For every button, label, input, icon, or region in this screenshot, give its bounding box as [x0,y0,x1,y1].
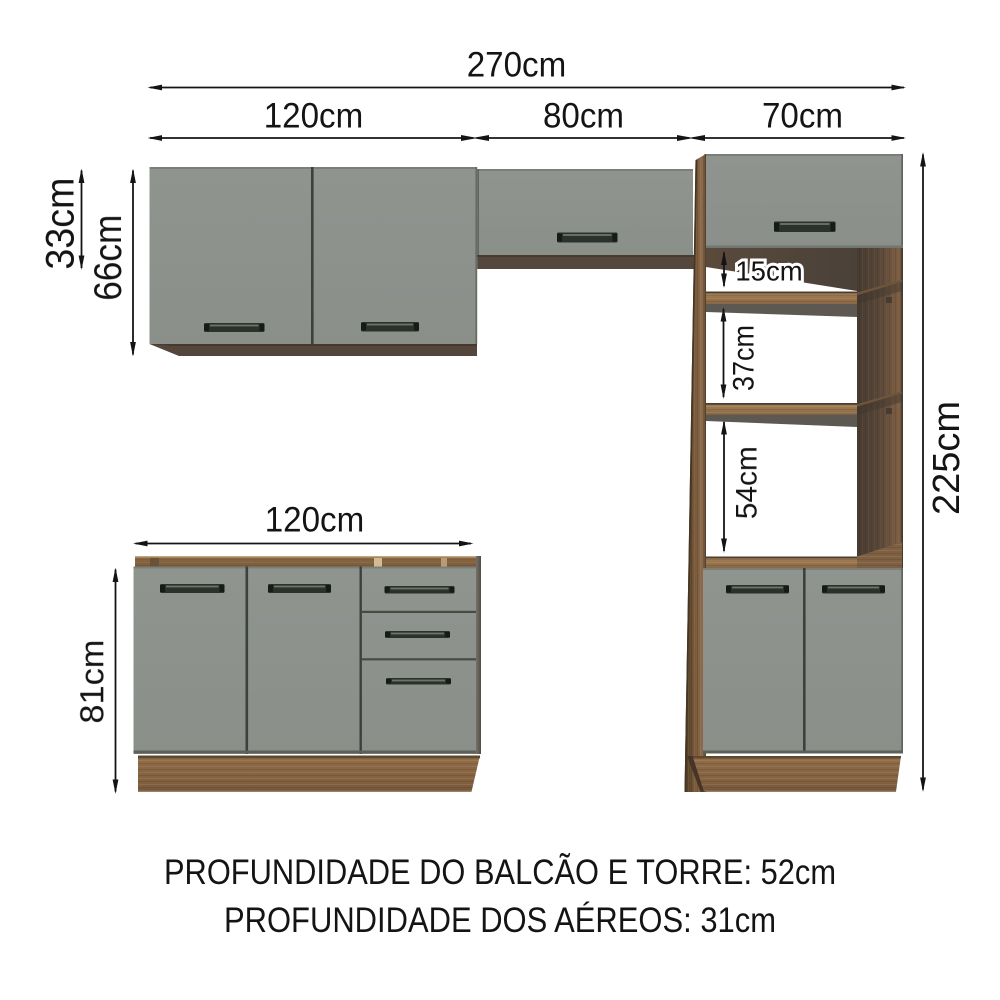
svg-text:33cm: 33cm [39,178,83,270]
svg-text:120cm: 120cm [264,96,364,136]
svg-text:66cm: 66cm [87,215,130,301]
svg-text:120cm: 120cm [265,500,365,540]
svg-text:15cm: 15cm [735,256,802,287]
svg-text:PROFUNDIDADE DO BALCÃO E TORRE: PROFUNDIDADE DO BALCÃO E TORRE: 52cm [164,853,836,892]
svg-text:225cm: 225cm [926,401,968,515]
svg-text:37cm: 37cm [728,325,761,391]
svg-text:54cm: 54cm [731,446,764,519]
svg-text:70cm: 70cm [762,96,843,136]
svg-text:270cm: 270cm [467,45,567,85]
svg-text:81cm: 81cm [73,640,110,724]
svg-text:80cm: 80cm [543,96,624,136]
svg-text:PROFUNDIDADE DOS AÉREOS: 31cm: PROFUNDIDADE DOS AÉREOS: 31cm [224,901,776,940]
